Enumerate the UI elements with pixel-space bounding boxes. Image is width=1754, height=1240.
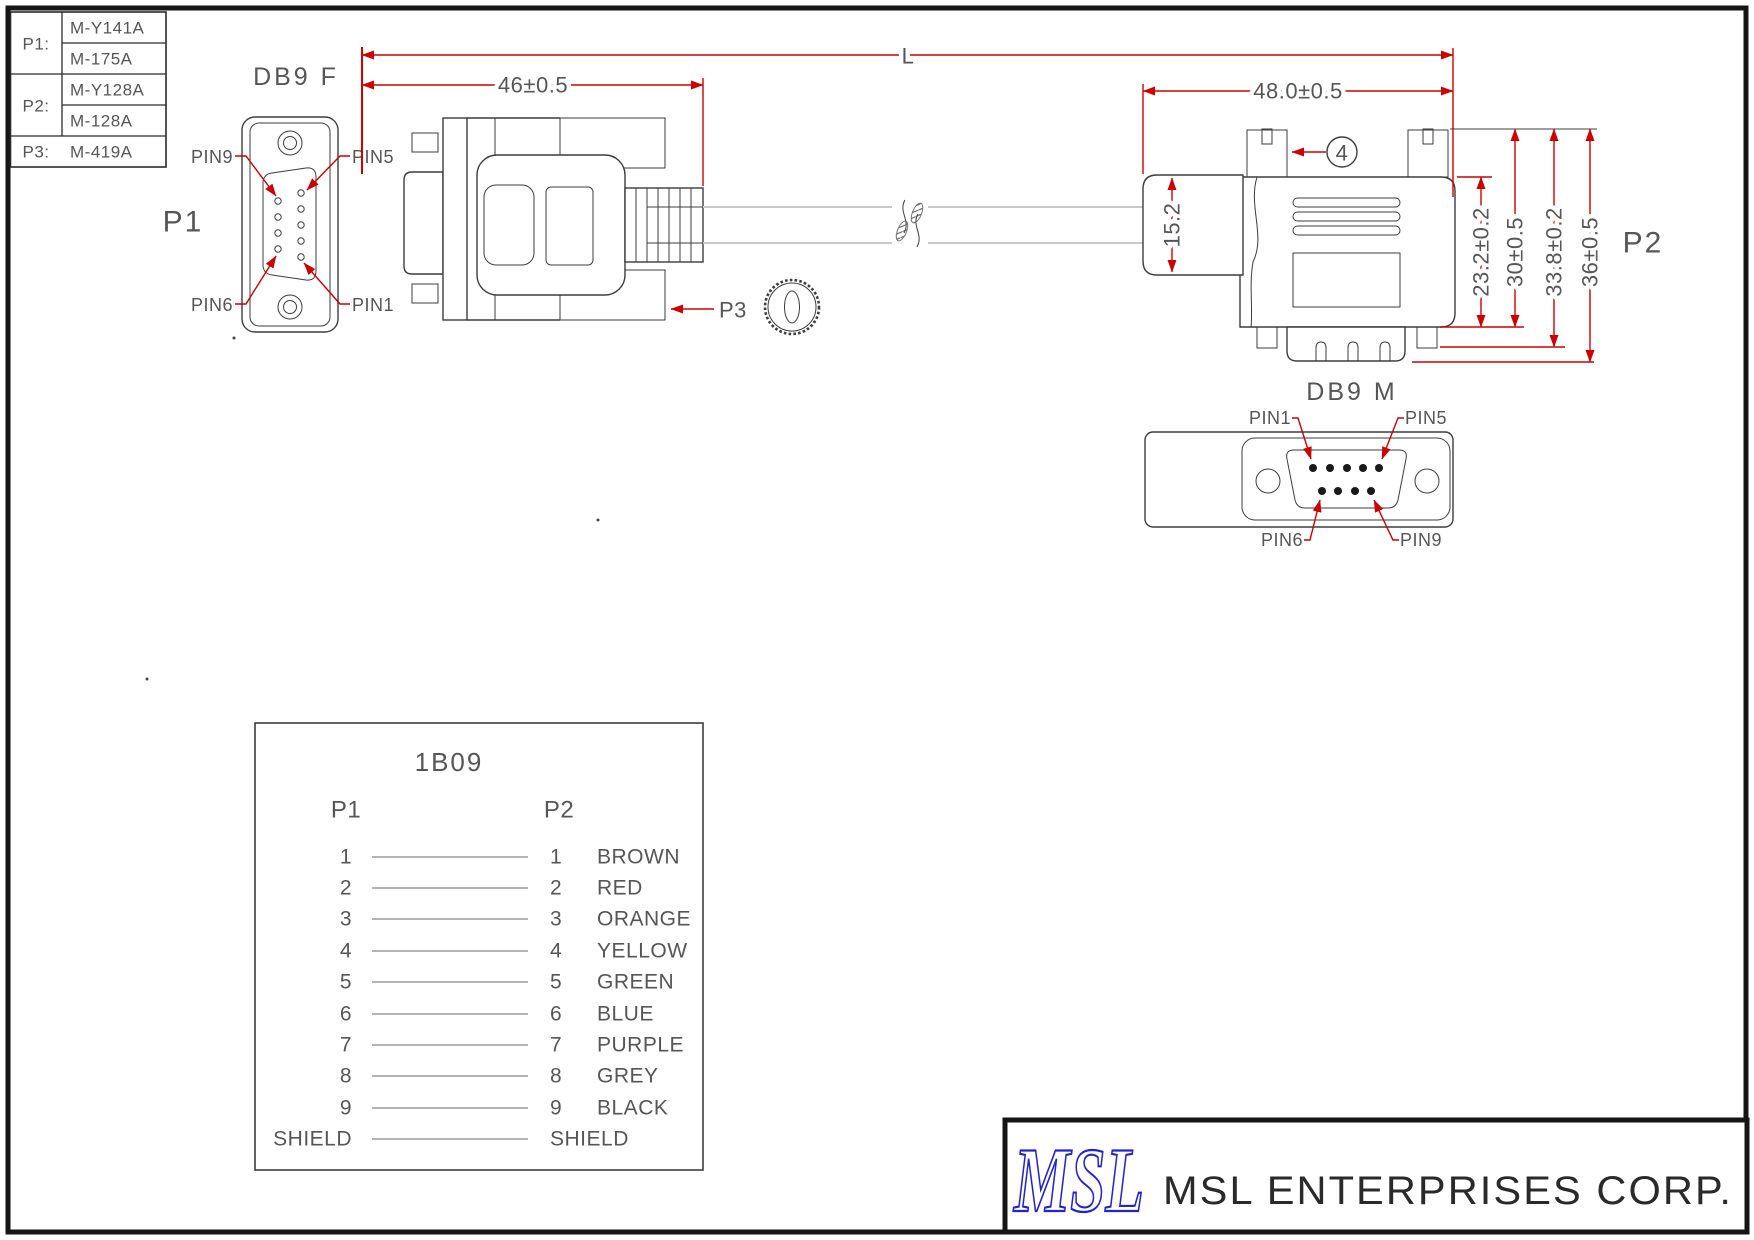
wiring-header-p2: P2 (544, 797, 574, 824)
db9-male-front-view: DB9 M PIN1 PIN5 PIN6 PIN9 (1145, 378, 1453, 550)
wire-color: GREY (597, 1065, 659, 1088)
db9-female-front-view: DB9 F P1 PIN9 PIN5 PIN6 PIN1 (163, 63, 394, 340)
pin-5 (1375, 464, 1383, 472)
wiring-p1-pin: 1 (340, 846, 352, 869)
db9-f-pin6-label: PIN6 (191, 295, 233, 315)
wire-color: GREEN (597, 971, 674, 994)
p2-ref-label: P2 (1623, 227, 1664, 260)
parts-table-p1-label: P1: (22, 35, 49, 54)
pin-9 (1367, 487, 1375, 495)
p1-mating-shell (404, 172, 443, 274)
parts-table-p2-value-1: M-Y128A (70, 81, 145, 100)
stray-dot (146, 678, 149, 681)
p1-screw-stud-bottom (412, 284, 438, 303)
wiring-p2-pin: 1 (550, 846, 562, 869)
p2-thumbscrew-left-notch (1262, 129, 1272, 144)
wire-color: YELLOW (597, 940, 688, 963)
wiring-p1-pin: 6 (340, 1003, 352, 1026)
pin-7 (1334, 487, 1342, 495)
wiring-p2-pin: 9 (550, 1097, 562, 1120)
db9-m-title: DB9 M (1306, 378, 1397, 406)
wiring-p2-pin: 7 (550, 1034, 562, 1057)
wiring-p1-pin: 8 (340, 1065, 352, 1088)
wiring-p1-pin: 5 (340, 971, 352, 994)
wiring-p1-pin: 2 (340, 877, 352, 900)
wiring-p1-pin: 4 (340, 940, 352, 963)
db9-f-pin9-label: PIN9 (191, 147, 233, 167)
wire-color: PURPLE (597, 1034, 684, 1057)
pin-1 (1309, 464, 1317, 472)
title-block: MSL MSL ENTERPRISES CORP. (1005, 1120, 1747, 1232)
dim-body-height: 23.2±0.2 (1469, 207, 1494, 296)
wiring-p2-shield: SHIELD (550, 1128, 629, 1151)
p2-stud-right (1417, 327, 1437, 348)
parts-table-p2-label: P2: (22, 97, 49, 116)
p1-flange (443, 118, 467, 320)
wiring-p1-pin: 7 (340, 1034, 352, 1057)
wire-color: RED (597, 877, 643, 900)
p3-thumbscrew-face-view (765, 280, 819, 334)
engineering-drawing-page: P1: M-Y141A M-175A P2: M-Y128A M-128A P3… (0, 0, 1754, 1240)
company-name: MSL ENTERPRISES CORP. (1163, 1169, 1733, 1213)
wiring-table-title: 1B09 (415, 747, 484, 777)
pin-3 (1343, 464, 1351, 472)
parts-table: P1: M-Y141A M-175A P2: M-Y128A M-128A P3… (11, 12, 167, 167)
p1-strain-relief (625, 188, 703, 262)
wiring-p1-pin: 9 (340, 1097, 352, 1120)
p2-strain-relief-boot (1143, 175, 1243, 275)
dim-shell-height: 33.8±0.2 (1542, 207, 1567, 296)
cable (703, 196, 1143, 252)
wiring-p2-pin: 8 (550, 1065, 562, 1088)
db9-f-pin5-label: PIN5 (352, 147, 394, 167)
wiring-p2-pin: 2 (550, 877, 562, 900)
knurled-edge (765, 280, 819, 334)
parts-table-p1-value-2: M-175A (70, 50, 133, 69)
db9-m-pin5-label: PIN5 (1405, 408, 1447, 428)
wire-color: ORANGE (597, 908, 691, 931)
p3-callout-label: P3 (719, 298, 747, 323)
db9-m-pin1-label: PIN1 (1249, 408, 1291, 428)
p1-side-view (404, 118, 703, 320)
p2-side-view (1143, 129, 1597, 361)
wire-color: BLUE (597, 1003, 654, 1026)
stray-dot (597, 519, 600, 522)
p2-d-shell (1287, 327, 1405, 361)
wiring-p2-pin: 4 (550, 940, 562, 963)
db9-m-body (1145, 432, 1453, 527)
p2-molded-body (1240, 177, 1455, 327)
p2-thumbscrew-left (1247, 130, 1287, 177)
wiring-p2-pin: 5 (550, 971, 562, 994)
parts-table-p1-value-1: M-Y141A (70, 19, 145, 38)
wiring-header-p1: P1 (331, 797, 361, 824)
balloon-callout-4: 4 (1292, 137, 1357, 167)
wiring-p2-pin: 6 (550, 1003, 562, 1026)
dim-overall-length: L (902, 44, 915, 69)
parts-table-p2-value-2: M-128A (70, 112, 133, 131)
p1-screw-stud-top (412, 133, 438, 152)
p2-thumbscrew-right (1408, 130, 1448, 177)
wire-color: BROWN (597, 846, 680, 869)
p2-stud-left (1257, 327, 1277, 348)
pin-6 (1318, 487, 1326, 495)
wiring-table: 1B09 P1 P2 1 1 BROWN 2 2 RED 3 3 ORANGE … (255, 723, 703, 1170)
wire-color: BLACK (597, 1097, 668, 1120)
db9-f-pin1-label: PIN1 (352, 295, 394, 315)
pin-4 (1359, 464, 1367, 472)
parts-table-p3-label: P3: (22, 143, 49, 162)
drawing-canvas: P1: M-Y141A M-175A P2: M-Y128A M-128A P3… (0, 0, 1754, 1240)
wiring-p1-pin: 3 (340, 908, 352, 931)
db9-m-pin6-label: PIN6 (1261, 530, 1303, 550)
balloon-number: 4 (1336, 141, 1349, 166)
pin-8 (1351, 487, 1359, 495)
db9-f-title: DB9 F (253, 63, 339, 91)
msl-logo: MSL (1013, 1129, 1144, 1231)
p1-ref-label: P1 (163, 206, 204, 239)
stray-dot (233, 337, 236, 340)
p2-thumbscrew-right-notch (1423, 129, 1433, 144)
dim-right-connector-length: 48.0±0.5 (1253, 79, 1342, 104)
dim-screw-height: 30±0.5 (1503, 217, 1528, 287)
dim-left-connector-length: 46±0.5 (498, 73, 568, 98)
wiring-p1-shield: SHIELD (273, 1128, 352, 1151)
wiring-p2-pin: 3 (550, 908, 562, 931)
dim-total-height: 36±0.5 (1578, 217, 1603, 287)
db9-m-pin9-label: PIN9 (1400, 530, 1442, 550)
p1-hood-body (477, 155, 625, 295)
parts-table-p3-value: M-419A (70, 143, 133, 162)
pin-2 (1326, 464, 1334, 472)
dim-boot-height: 15.2 (1160, 203, 1185, 248)
